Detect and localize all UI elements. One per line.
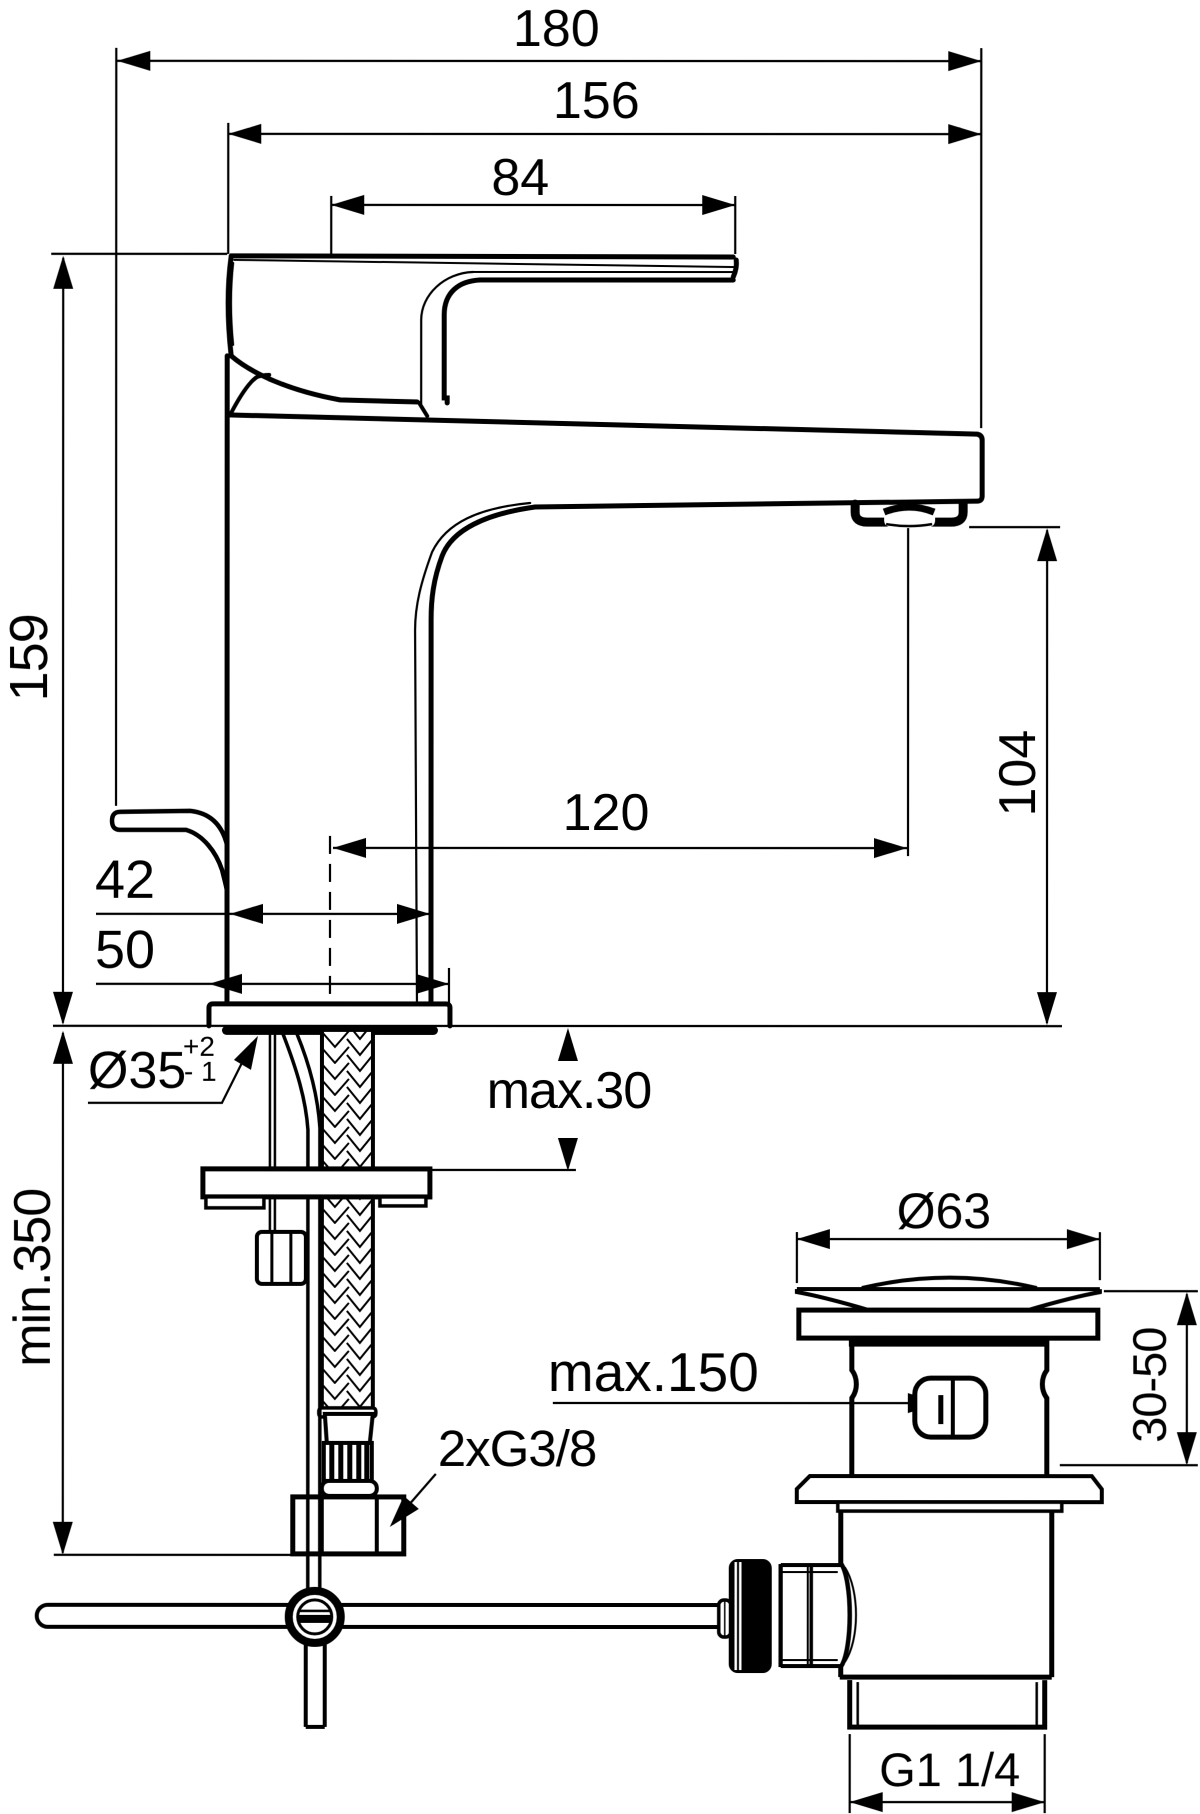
svg-text:max.150: max.150 [548, 1341, 759, 1403]
svg-text:G1 1/4: G1 1/4 [879, 1743, 1020, 1796]
svg-text:Ø35: Ø35 [88, 1042, 186, 1100]
svg-text:- 1: - 1 [184, 1056, 217, 1087]
svg-text:Ø63: Ø63 [897, 1183, 992, 1239]
svg-text:max.30: max.30 [487, 1062, 652, 1120]
svg-text:30-50: 30-50 [1123, 1328, 1176, 1443]
svg-text:156: 156 [553, 72, 640, 130]
svg-text:2xG3/8: 2xG3/8 [438, 1420, 596, 1477]
svg-text:159: 159 [0, 614, 59, 701]
svg-text:42: 42 [95, 850, 155, 910]
svg-text:104: 104 [989, 730, 1047, 817]
svg-text:180: 180 [513, 0, 600, 58]
svg-text:50: 50 [95, 920, 155, 980]
svg-text:84: 84 [491, 149, 549, 207]
svg-text:min.350: min.350 [4, 1189, 62, 1367]
svg-text:120: 120 [563, 784, 650, 842]
